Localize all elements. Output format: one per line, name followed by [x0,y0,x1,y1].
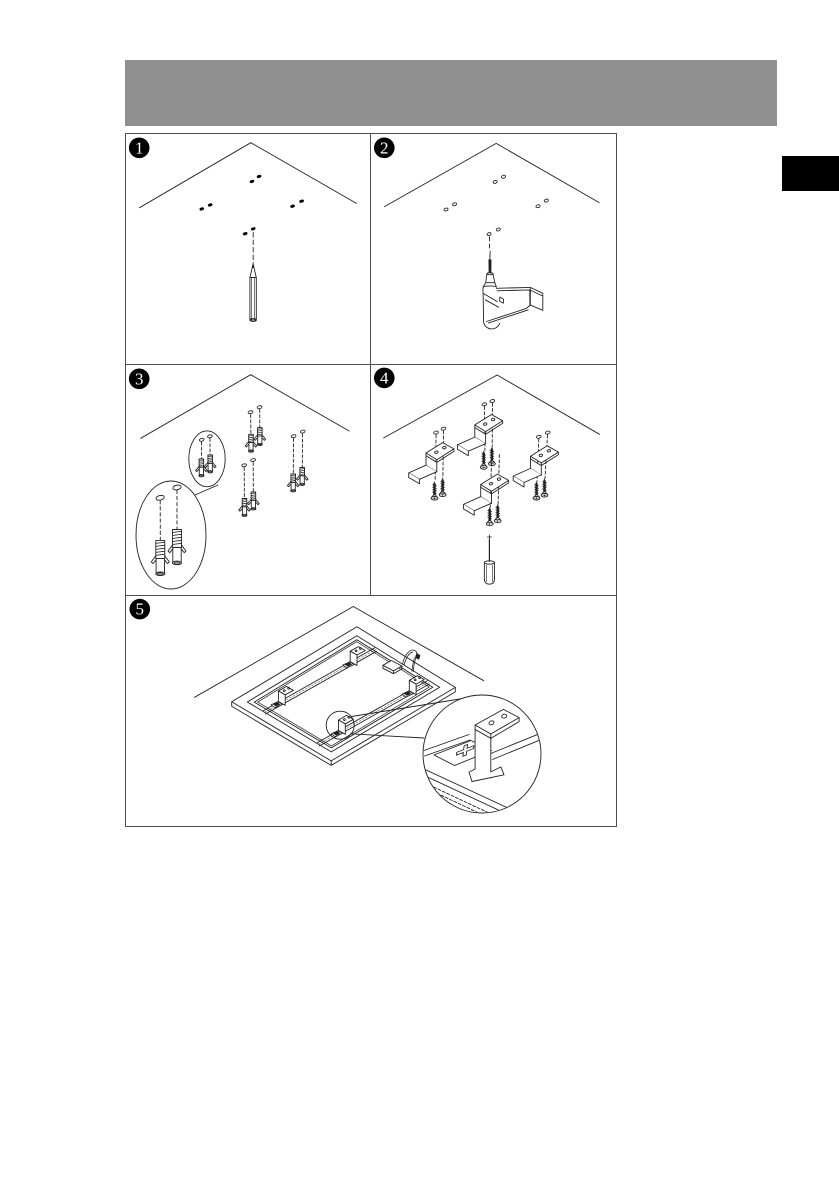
svg-text:4: 4 [380,368,389,387]
svg-text:1: 1 [135,138,144,157]
svg-text:3: 3 [135,369,144,388]
svg-text:5: 5 [136,600,145,619]
svg-text:2: 2 [380,138,389,157]
